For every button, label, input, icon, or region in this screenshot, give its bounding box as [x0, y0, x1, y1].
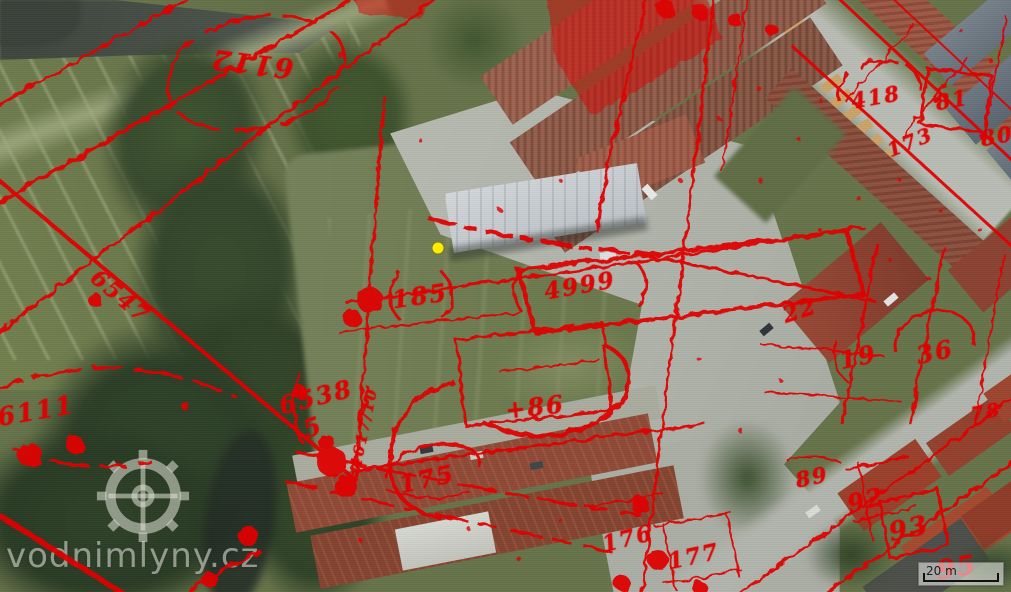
map-viewport[interactable]: vodnimlyny.cz: [0, 0, 1011, 592]
aerial-photo-layer: [0, 0, 1011, 592]
map-scale-bar: 20 m: [918, 562, 1004, 586]
photo-grain: [0, 0, 1011, 592]
watermill-location-marker[interactable]: [433, 243, 444, 254]
scale-bar-line: [923, 573, 999, 582]
